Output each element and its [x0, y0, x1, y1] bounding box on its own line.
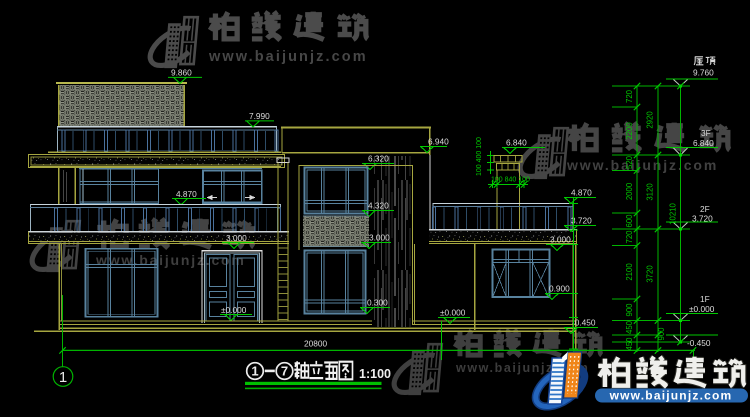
- svg-text:9.760: 9.760: [693, 68, 714, 78]
- svg-text:2920: 2920: [646, 111, 655, 129]
- svg-text:-0.450: -0.450: [687, 338, 711, 348]
- svg-text:20800: 20800: [304, 339, 327, 349]
- svg-text:1F: 1F: [700, 294, 710, 304]
- svg-text:3.720: 3.720: [571, 216, 592, 226]
- svg-text:1: 1: [251, 364, 258, 379]
- svg-text:±0.000: ±0.000: [689, 304, 715, 314]
- svg-text:0.300: 0.300: [367, 298, 388, 308]
- svg-text:www.baijunjz.com: www.baijunjz.com: [566, 157, 718, 173]
- svg-text:www.baijunjz.com: www.baijunjz.com: [208, 49, 368, 65]
- svg-text:4.870: 4.870: [571, 188, 592, 198]
- svg-text:1:100: 1:100: [359, 367, 391, 381]
- svg-text:2100: 2100: [625, 263, 634, 281]
- svg-text:2F: 2F: [700, 204, 710, 214]
- svg-text:6.840: 6.840: [506, 138, 527, 148]
- svg-text:6.940: 6.940: [428, 137, 449, 147]
- svg-text:100 400 100: 100 400 100: [476, 137, 483, 176]
- svg-text:10210: 10210: [669, 202, 678, 224]
- svg-text:7: 7: [281, 364, 288, 379]
- svg-text:3F: 3F: [701, 128, 711, 138]
- svg-text:2200: 2200: [625, 122, 634, 140]
- svg-text:520: 520: [625, 155, 634, 169]
- svg-text:3120: 3120: [646, 183, 655, 201]
- svg-text:3.720: 3.720: [692, 214, 713, 224]
- svg-text:-0.450: -0.450: [572, 318, 596, 328]
- svg-text:1: 1: [59, 369, 67, 386]
- svg-text:9.860: 9.860: [171, 68, 192, 78]
- svg-text:3720: 3720: [646, 265, 655, 283]
- svg-text:450: 450: [625, 337, 634, 351]
- svg-text:±0.000: ±0.000: [440, 308, 466, 318]
- svg-text:2000: 2000: [625, 182, 634, 200]
- svg-text:6.320: 6.320: [368, 154, 389, 164]
- svg-text:900: 900: [657, 327, 666, 341]
- svg-text:600: 600: [625, 214, 634, 228]
- svg-text:3.000: 3.000: [550, 235, 571, 245]
- svg-text:±0.000: ±0.000: [221, 305, 247, 315]
- svg-text:450: 450: [625, 320, 634, 334]
- svg-text:4.870: 4.870: [176, 189, 197, 199]
- svg-text:0.900: 0.900: [549, 284, 570, 294]
- svg-text:4.320: 4.320: [368, 201, 389, 211]
- svg-text:720: 720: [625, 89, 634, 103]
- svg-text:3.000: 3.000: [226, 233, 247, 243]
- svg-text:3.000: 3.000: [369, 233, 390, 243]
- svg-text:www.baijunjz.com: www.baijunjz.com: [609, 389, 733, 403]
- svg-text:7.990: 7.990: [249, 111, 270, 121]
- svg-text:720: 720: [625, 230, 634, 244]
- svg-text:6.840: 6.840: [693, 138, 714, 148]
- svg-text:900: 900: [625, 303, 634, 317]
